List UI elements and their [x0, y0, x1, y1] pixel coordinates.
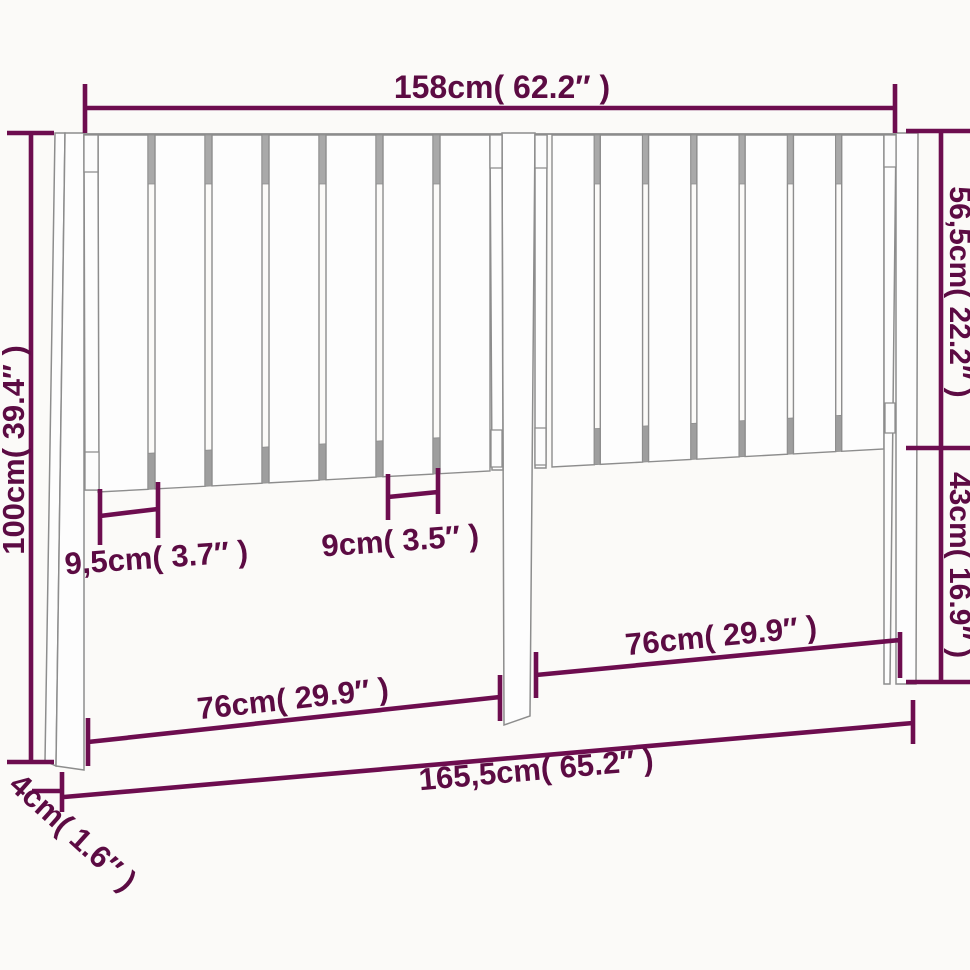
- right-post-face: [896, 133, 918, 684]
- dimension-width-total: 165,5cm( 65.2″ ): [62, 700, 913, 812]
- center-post-bottom-notch-right: [535, 428, 546, 465]
- slat: [155, 135, 205, 489]
- slat-gap-bottom-rail: [691, 423, 697, 459]
- slat-gap-top-rail: [205, 135, 212, 184]
- slat-gap-bottom-rail: [836, 415, 842, 451]
- dimension-width-top: 158cm( 62.2″ ): [85, 69, 895, 133]
- dimension-label-upper-height-right: 56,5cm( 22.2″ ): [943, 186, 970, 397]
- slat-gap-bottom-rail: [376, 441, 383, 477]
- slat-gap-bottom-rail: [262, 447, 269, 483]
- center-post-face: [502, 133, 535, 725]
- slat-gap-bottom-rail: [739, 421, 745, 457]
- dimension-label-width-total: 165,5cm( 65.2″ ): [417, 742, 655, 797]
- dimension-label-height-left: 100cm( 39.4″ ): [0, 345, 31, 555]
- slat: [745, 135, 787, 457]
- slat-gap-top-rail: [739, 135, 745, 184]
- center-post-bottom-notch-left: [491, 430, 502, 467]
- dimension-label-post-depth: 4cm( 1.6″ ): [3, 766, 144, 898]
- dimension-span-right: 76cm( 29.9″ ): [536, 609, 900, 698]
- center-post-top-notch-left: [490, 135, 502, 168]
- slat-gap-bottom-rail: [205, 450, 212, 486]
- slat-section-right: [552, 135, 884, 467]
- left-post-top-notch: [84, 135, 98, 172]
- dimension-label-slat-spacing: 9cm( 3.5″ ): [320, 518, 480, 564]
- right-post-bottom-notch: [885, 403, 895, 433]
- slat: [697, 135, 739, 459]
- center-post-left-strip: [490, 135, 503, 470]
- slat: [269, 135, 319, 483]
- right-post-top-notch: [884, 135, 896, 167]
- slat-gap-top-rail: [787, 135, 793, 184]
- dimension-label-span-right: 76cm( 29.9″ ): [624, 609, 819, 662]
- dimension-label-width-top: 158cm( 62.2″ ): [394, 69, 610, 105]
- diagram-canvas: 158cm( 62.2″ ) 100cm( 39.4″ ) 56,5cm( 22…: [0, 0, 970, 970]
- slat: [326, 135, 376, 480]
- slat-gap-top-rail: [433, 135, 440, 184]
- slat: [383, 135, 433, 477]
- left-post-bottom-notch: [85, 452, 99, 490]
- slat: [212, 135, 262, 486]
- slat-gap-top-rail: [376, 135, 383, 184]
- dimension-slat-width: 9,5cm( 3.7″ ): [63, 482, 249, 581]
- dimension-slat-spacing: 9cm( 3.5″ ): [320, 468, 480, 563]
- headboard-drawing: [45, 133, 918, 770]
- slat-gap-top-rail: [148, 135, 155, 184]
- slat: [98, 135, 148, 492]
- center-post-right-strip: [535, 135, 547, 468]
- slat-section-left: [98, 135, 490, 492]
- slat-gap-top-rail: [643, 135, 649, 184]
- dimension-label-lower-height-right: 43cm( 16.9″ ): [943, 472, 970, 658]
- slat-gap-bottom-rail: [319, 444, 326, 480]
- slat: [440, 135, 490, 474]
- slat-gap-top-rail: [319, 135, 326, 184]
- left-post-slat-strip: [84, 135, 99, 490]
- slat: [649, 135, 691, 462]
- slat: [552, 135, 594, 467]
- slat-gap-top-rail: [262, 135, 269, 184]
- slat-gap-top-rail: [691, 135, 697, 184]
- slat-gap-bottom-rail: [594, 428, 600, 464]
- slat: [600, 135, 642, 464]
- slat: [793, 135, 835, 454]
- slat-gap-bottom-rail: [148, 453, 155, 489]
- slat-gap-top-rail: [836, 135, 842, 184]
- slat-gap-bottom-rail: [787, 418, 793, 454]
- dimension-post-depth: 4cm( 1.6″ ): [3, 766, 144, 898]
- slat: [842, 135, 884, 451]
- center-post-top-notch-right: [535, 135, 547, 168]
- slat-gap-top-rail: [594, 135, 600, 184]
- dimension-span-left: 76cm( 29.9″ ): [88, 671, 500, 766]
- slat-gap-bottom-rail: [643, 426, 649, 462]
- dimension-label-slat-width: 9,5cm( 3.7″ ): [63, 534, 249, 582]
